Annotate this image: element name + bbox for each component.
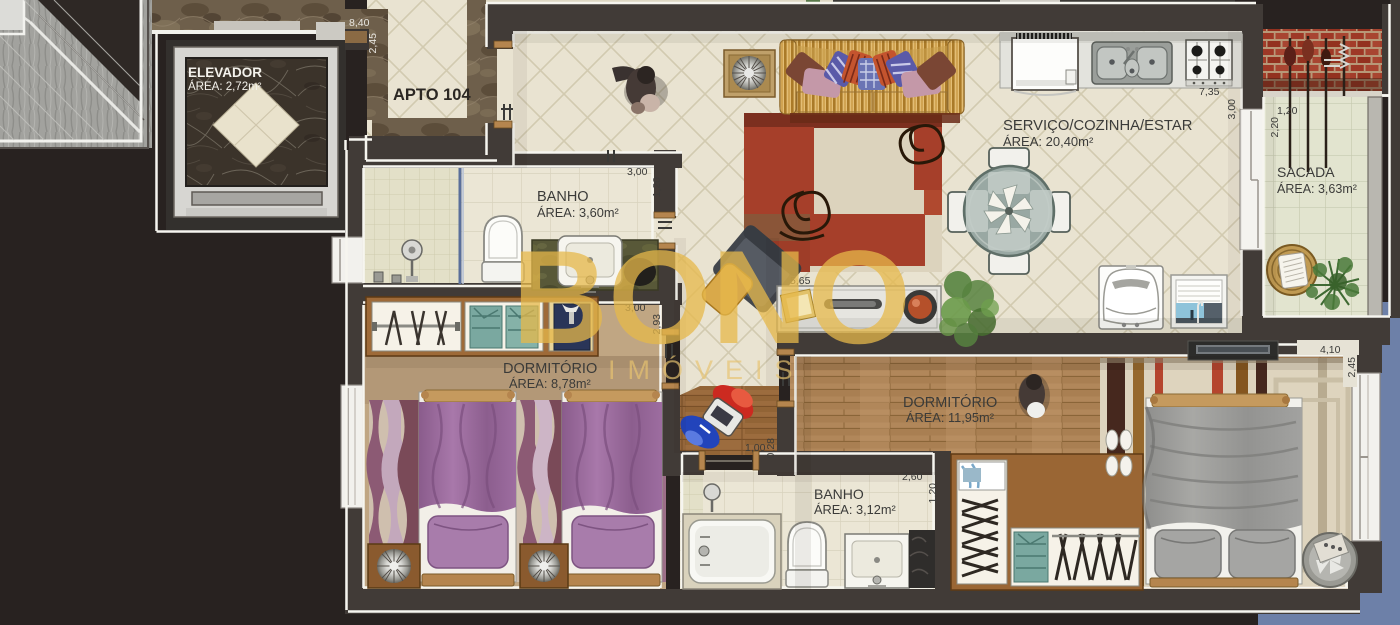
svg-text:2,60: 2,60 (902, 471, 923, 483)
svg-text:ÁREA: 2,72m²: ÁREA: 2,72m² (188, 80, 262, 93)
svg-text:SACADA: SACADA (1277, 164, 1335, 180)
svg-text:ÁREA: 8,78m²: ÁREA: 8,78m² (509, 376, 592, 391)
svg-text:ÁREA: 3,63m²: ÁREA: 3,63m² (1277, 181, 1357, 196)
svg-text:2,45: 2,45 (1346, 357, 1358, 378)
svg-text:DORMITÓRIO: DORMITÓRIO (903, 394, 997, 411)
svg-text:3,00: 3,00 (627, 166, 648, 178)
svg-text:2,45: 2,45 (367, 33, 379, 54)
svg-text:1,20: 1,20 (651, 177, 663, 198)
svg-text:BANHO: BANHO (814, 486, 864, 502)
svg-text:BANHO: BANHO (537, 189, 589, 205)
svg-text:ÁREA: 3,60m²: ÁREA: 3,60m² (537, 205, 620, 220)
svg-text:ÁREA: 20,40m²: ÁREA: 20,40m² (1003, 134, 1094, 149)
svg-text:ÁREA: 3,12m²: ÁREA: 3,12m² (814, 502, 897, 517)
svg-text:1,20: 1,20 (927, 483, 939, 504)
svg-text:IMÓVEIS: IMÓVEIS (608, 354, 805, 385)
svg-text:7,35: 7,35 (1199, 86, 1220, 98)
svg-text:2,20: 2,20 (1269, 117, 1281, 138)
svg-text:3,00: 3,00 (1226, 99, 1238, 120)
svg-text:APTO 104: APTO 104 (393, 86, 471, 104)
svg-text:8,40: 8,40 (349, 17, 370, 29)
svg-text:ELEVADOR: ELEVADOR (188, 65, 262, 80)
svg-text:BONO: BONO (512, 224, 911, 372)
svg-text:4,10: 4,10 (1320, 344, 1341, 356)
svg-text:0,28: 0,28 (765, 438, 777, 459)
svg-text:SERVIÇO/COZINHA/ESTAR: SERVIÇO/COZINHA/ESTAR (1003, 118, 1192, 134)
svg-text:1,00: 1,00 (745, 442, 766, 454)
svg-text:ÁREA: 11,95m²: ÁREA: 11,95m² (906, 410, 995, 425)
svg-text:1,20: 1,20 (1277, 105, 1298, 117)
